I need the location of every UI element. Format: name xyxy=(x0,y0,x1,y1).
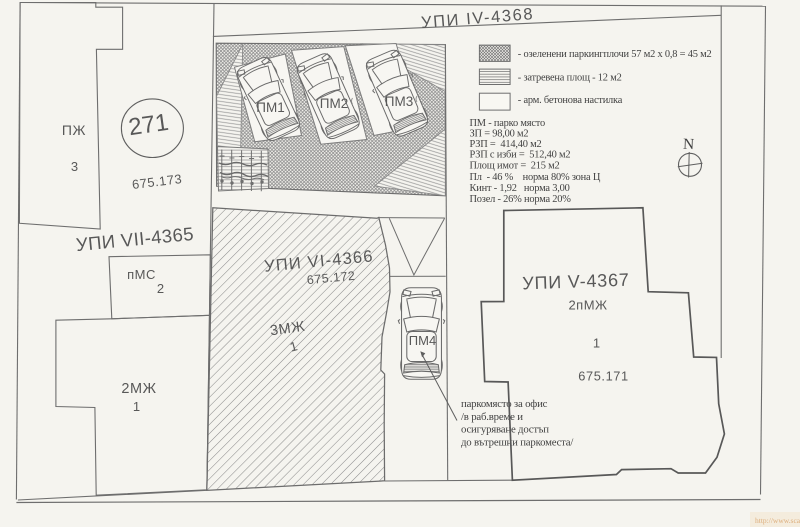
svg-text:пМС: пМС xyxy=(127,267,156,282)
svg-text:N: N xyxy=(683,136,695,153)
svg-text:1: 1 xyxy=(593,336,600,351)
svg-text:осигуряване достъп: осигуряване достъп xyxy=(461,424,549,436)
svg-text:ПЖ: ПЖ xyxy=(62,122,86,138)
svg-text:РЗП с изби = 512,40 м2: РЗП с изби = 512,40 м2 xyxy=(470,150,571,161)
svg-text:Кинт - 1,92 норма 3,00: Кинт - 1,92 норма 3,00 xyxy=(470,183,570,194)
svg-text:УПИ V-4367: УПИ V-4367 xyxy=(522,270,630,294)
svg-text:Позел - 26% норма 20%: Позел - 26% норма 20% xyxy=(470,194,572,205)
svg-text:- затревена площ - 12 м2: - затревена площ - 12 м2 xyxy=(518,73,622,84)
svg-text:Пл - 46 % норма 80% зона Ц: Пл - 46 % норма 80% зона Ц xyxy=(470,172,601,183)
svg-text:до вътрешни паркоместа/: до вътрешни паркоместа/ xyxy=(461,436,573,448)
svg-text:3: 3 xyxy=(71,159,78,174)
svg-text:2пМЖ: 2пМЖ xyxy=(568,298,607,313)
svg-text:ПМ4: ПМ4 xyxy=(409,333,436,348)
svg-text:2: 2 xyxy=(157,281,164,296)
svg-text:ПМ3: ПМ3 xyxy=(385,94,413,109)
svg-text:ПМ - парко място: ПМ - парко място xyxy=(470,118,545,129)
svg-text:2МЖ: 2МЖ xyxy=(121,381,156,397)
svg-text:ПМ1: ПМ1 xyxy=(256,100,284,115)
svg-text:ПМ2: ПМ2 xyxy=(320,96,348,111)
svg-text:/в раб.време и: /в раб.време и xyxy=(461,411,523,423)
svg-text:675.171: 675.171 xyxy=(578,369,628,384)
svg-text:1: 1 xyxy=(133,399,140,414)
svg-text:РЗП = 414,40 м2: РЗП = 414,40 м2 xyxy=(470,139,542,150)
svg-text:ЗП = 98,00 м2: ЗП = 98,00 м2 xyxy=(470,129,529,140)
svg-text:Площ имот = 215 м2: Площ имот = 215 м2 xyxy=(470,160,560,171)
svg-text:271: 271 xyxy=(127,109,170,141)
svg-text:паркомясто за офис: паркомясто за офис xyxy=(461,398,548,410)
svg-text:- арм. бетонова настилка: - арм. бетонова настилка xyxy=(518,95,623,106)
svg-text:һttр://www.scanех.bg: һttр://www.scanех.bg xyxy=(755,516,800,525)
svg-text:- озеленени паркингплочи 57 м2: - озеленени паркингплочи 57 м2 х 0,8 = 4… xyxy=(518,49,712,60)
